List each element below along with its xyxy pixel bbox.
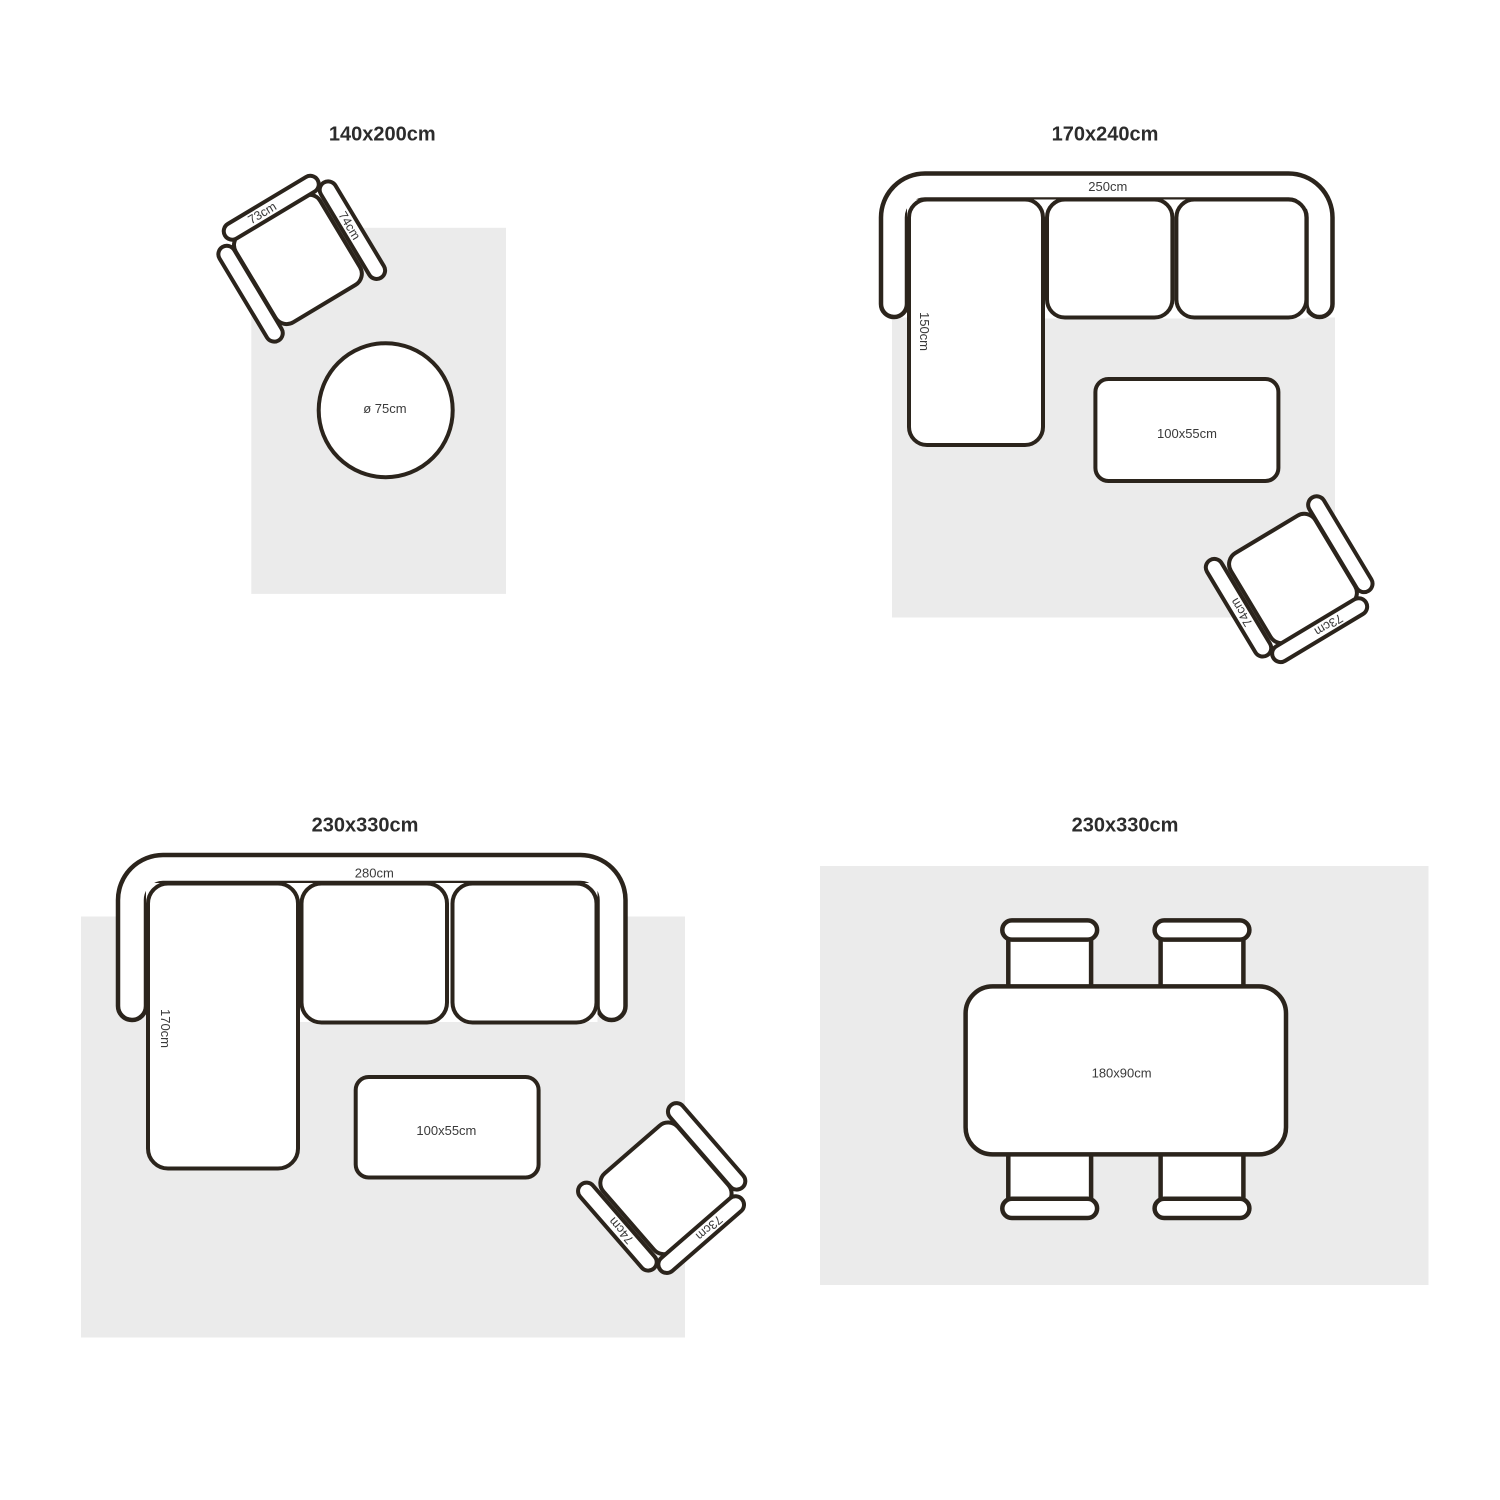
svg-text:ø 75cm: ø 75cm	[363, 401, 406, 416]
svg-text:180x90cm: 180x90cm	[1092, 1066, 1152, 1081]
svg-text:170cm: 170cm	[158, 1009, 173, 1048]
svg-text:100x55cm: 100x55cm	[416, 1123, 476, 1138]
svg-text:230x330cm: 230x330cm	[312, 815, 419, 837]
svg-text:140x200cm: 140x200cm	[329, 124, 436, 146]
svg-text:250cm: 250cm	[1088, 179, 1127, 194]
svg-text:230x330cm: 230x330cm	[1072, 815, 1179, 837]
svg-text:150cm: 150cm	[917, 312, 932, 351]
svg-text:170x240cm: 170x240cm	[1052, 124, 1159, 146]
svg-text:280cm: 280cm	[355, 865, 394, 880]
svg-text:100x55cm: 100x55cm	[1157, 426, 1217, 441]
